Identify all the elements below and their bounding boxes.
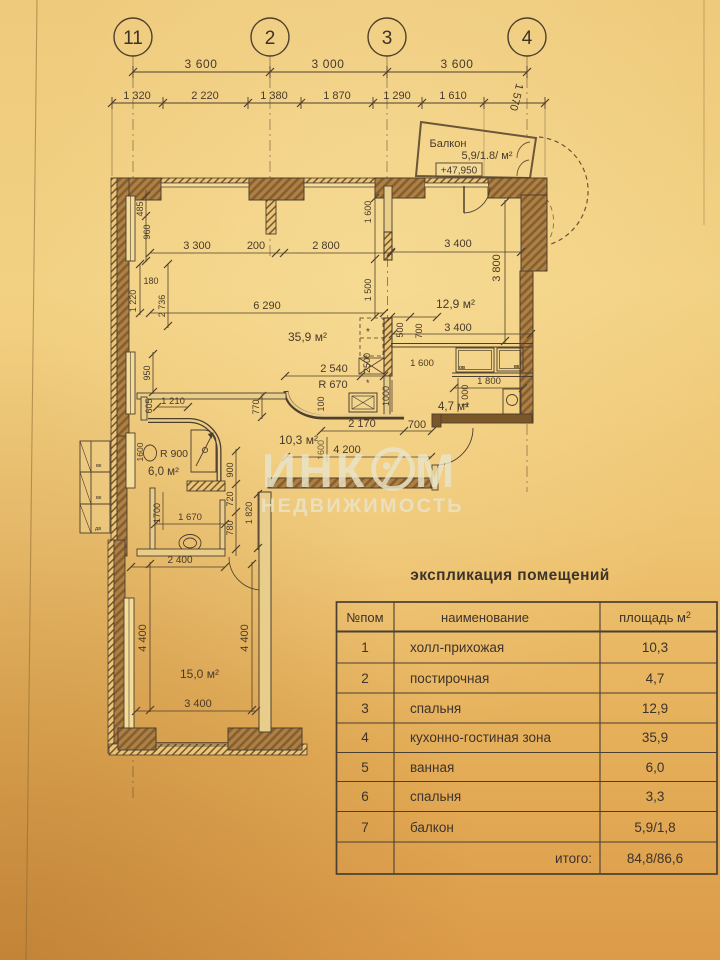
svg-text:наименование: наименование: [441, 610, 529, 625]
svg-text:дв: дв: [95, 526, 101, 532]
svg-text:Балкон: Балкон: [430, 138, 467, 150]
svg-text:2: 2: [265, 28, 276, 49]
svg-text:1700: 1700: [152, 503, 162, 523]
svg-text:1 600: 1 600: [410, 358, 434, 369]
svg-text:700: 700: [408, 419, 426, 431]
svg-text:15,0 м²: 15,0 м²: [180, 667, 219, 681]
svg-text:4 400: 4 400: [239, 624, 251, 652]
svg-text:вк: вк: [96, 495, 102, 501]
svg-text:М: М: [415, 444, 454, 497]
svg-text:спальня: спальня: [410, 789, 461, 804]
svg-text:ванная: ванная: [410, 760, 454, 775]
svg-text:1 870: 1 870: [323, 90, 351, 102]
svg-text:6,0 м²: 6,0 м²: [148, 466, 179, 478]
svg-text:1 800: 1 800: [477, 376, 501, 387]
svg-text:1000: 1000: [381, 386, 391, 406]
svg-text:площадь м2: площадь м2: [619, 610, 691, 625]
svg-text:960: 960: [142, 224, 152, 239]
svg-text:холл-прихожая: холл-прихожая: [410, 640, 504, 655]
svg-text:6,0: 6,0: [646, 760, 665, 775]
svg-text:770: 770: [251, 399, 261, 414]
svg-text:3 600: 3 600: [184, 57, 217, 71]
svg-text:2 800: 2 800: [312, 240, 340, 252]
svg-text:1 320: 1 320: [123, 90, 151, 102]
svg-text:*: *: [366, 327, 370, 338]
svg-text:1 290: 1 290: [383, 90, 411, 102]
svg-text:1 820: 1 820: [244, 502, 254, 525]
svg-text:485: 485: [135, 201, 145, 216]
svg-text:кухонно-гостиная зона: кухонно-гостиная зона: [410, 730, 551, 745]
svg-text:35,9: 35,9: [642, 730, 668, 745]
svg-text:3 400: 3 400: [444, 238, 472, 250]
svg-text:3 800: 3 800: [491, 254, 503, 282]
svg-text:1 000: 1 000: [460, 385, 470, 408]
svg-text:2 170: 2 170: [348, 418, 376, 430]
svg-text:605: 605: [144, 398, 154, 413]
svg-text:1 670: 1 670: [178, 512, 202, 523]
svg-text:1600: 1600: [135, 442, 145, 461]
svg-text:4: 4: [522, 28, 533, 49]
svg-text:вк: вк: [96, 463, 102, 469]
svg-text:84,8/86,6: 84,8/86,6: [627, 851, 683, 866]
svg-text:3 400: 3 400: [444, 322, 472, 334]
svg-text:500: 500: [395, 322, 405, 337]
svg-text:балкон: балкон: [410, 820, 454, 835]
svg-text:экспликация помещений: экспликация помещений: [410, 567, 610, 584]
svg-text:вк: вк: [514, 364, 520, 370]
svg-text:2 736: 2 736: [157, 295, 167, 318]
svg-text:2: 2: [361, 671, 369, 686]
svg-text:3,3: 3,3: [646, 789, 665, 804]
svg-text:2 540: 2 540: [320, 363, 348, 375]
svg-text:*: *: [366, 378, 370, 388]
svg-text:900: 900: [225, 462, 235, 477]
svg-text:180: 180: [143, 276, 158, 286]
svg-text:1 610: 1 610: [439, 90, 467, 102]
svg-text:7: 7: [361, 820, 369, 835]
svg-text:4 400: 4 400: [137, 624, 149, 652]
svg-text:5: 5: [361, 760, 369, 775]
svg-text:1 220: 1 220: [128, 290, 138, 313]
svg-text:2500: 2500: [362, 353, 372, 373]
svg-text:R 900: R 900: [160, 448, 188, 460]
svg-text:720: 720: [225, 491, 235, 506]
svg-text:спальня: спальня: [410, 701, 461, 716]
svg-text:5,9/1.8/ м²: 5,9/1.8/ м²: [462, 150, 513, 162]
svg-text:+47,950: +47,950: [441, 166, 478, 177]
svg-text:1 500: 1 500: [363, 279, 373, 302]
svg-text:4,7: 4,7: [646, 671, 665, 686]
svg-text:№пом: №пом: [346, 610, 383, 625]
svg-text:1 380: 1 380: [260, 90, 288, 102]
svg-text:постирочная: постирочная: [410, 671, 489, 686]
svg-text:2 400: 2 400: [167, 555, 192, 566]
svg-text:4: 4: [361, 730, 369, 745]
svg-text:1 600: 1 600: [363, 201, 373, 224]
svg-text:2 220: 2 220: [191, 90, 219, 102]
svg-text:780: 780: [225, 520, 235, 535]
svg-text:12,9: 12,9: [642, 701, 668, 716]
svg-text:1: 1: [361, 640, 369, 655]
svg-text:35,9 м²: 35,9 м²: [288, 330, 327, 344]
svg-text:3: 3: [382, 28, 393, 49]
svg-text:950: 950: [142, 365, 152, 380]
svg-text:200: 200: [247, 240, 265, 252]
svg-text:12,9 м²: 12,9 м²: [436, 297, 475, 311]
svg-text:5,9/1,8: 5,9/1,8: [634, 820, 675, 835]
svg-text:НЕДВИЖИМОСТЬ: НЕДВИЖИМОСТЬ: [261, 495, 464, 517]
svg-text:10,3: 10,3: [642, 640, 668, 655]
svg-text:3 300: 3 300: [183, 240, 211, 252]
svg-text:3 400: 3 400: [184, 698, 212, 710]
svg-text:6: 6: [361, 789, 369, 804]
svg-text:3 600: 3 600: [440, 57, 473, 71]
svg-text:700: 700: [414, 323, 424, 338]
svg-text:3: 3: [361, 701, 369, 716]
svg-text:6 290: 6 290: [253, 300, 281, 312]
svg-text:1 210: 1 210: [161, 396, 185, 407]
svg-text:11: 11: [123, 28, 143, 49]
svg-text:3 000: 3 000: [311, 57, 344, 71]
svg-text:ИНК: ИНК: [262, 444, 367, 497]
svg-text:100: 100: [316, 396, 326, 411]
svg-text:R 670: R 670: [318, 379, 347, 391]
svg-text:итого:: итого:: [555, 851, 592, 866]
